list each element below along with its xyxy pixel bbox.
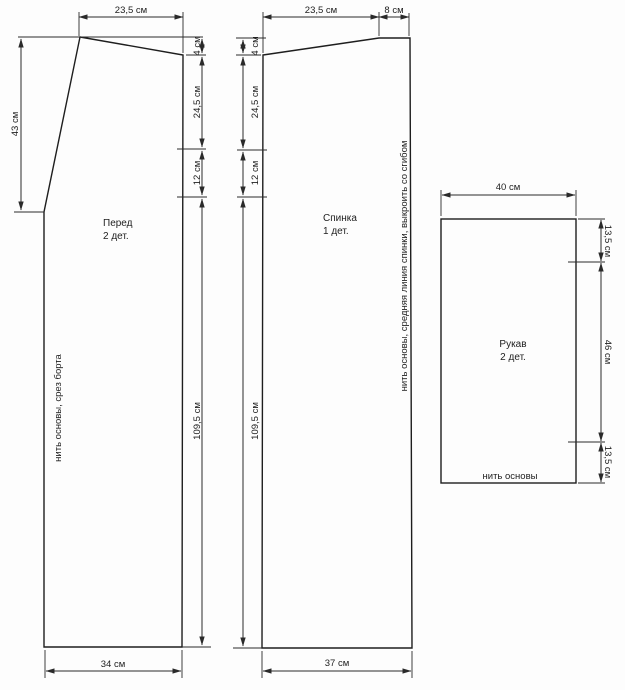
front-shoulder-width-label: 23,5 см: [115, 5, 147, 16]
front-piece-name: Перед: [103, 218, 133, 229]
front-grain-line-text: нить основы, срез борта: [53, 353, 64, 461]
front-edge-drop-label: 43 см: [10, 112, 21, 137]
back-to-waist-label: 12 см: [250, 161, 261, 186]
pattern-drawing: 23,5 см 43 см 4 см 24,5 см 12 см 109,5 с…: [0, 0, 625, 690]
front-shoulder-slope-label: 4 см: [192, 36, 203, 55]
sleeve-piece-quantity: 2 дет.: [500, 352, 526, 363]
sleeve-piece: 40 см 13,5 см 46 см 13,5 см нить основы …: [441, 182, 613, 483]
sleeve-middle-length-label: 46 см: [602, 340, 613, 365]
back-piece: 23,5 см 8 см 4 см 24,5 см 12 см 109,5 см…: [233, 5, 412, 678]
sleeve-grain-line-text: нить основы: [483, 471, 538, 482]
sleeve-piece-name: Рукав: [499, 339, 526, 350]
front-piece-outline: [44, 37, 183, 647]
front-to-waist-label: 12 см: [192, 161, 203, 186]
back-piece-outline: [262, 38, 412, 648]
back-shoulder-slope-label: 4 см: [250, 36, 261, 55]
back-armhole-depth-label: 24,5 см: [250, 86, 261, 118]
back-shoulder-width-label: 23,5 см: [305, 5, 337, 16]
sleeve-width-label: 40 см: [496, 182, 521, 193]
back-piece-name: Спинка: [323, 213, 357, 224]
back-hem-width-label: 37 см: [325, 658, 350, 669]
back-grain-line-text: нить основы, средняя линия спинки, выкро…: [399, 141, 410, 392]
front-piece: 23,5 см 43 см 4 см 24,5 см 12 см 109,5 с…: [10, 5, 211, 678]
back-side-length-label: 109,5 см: [250, 402, 261, 440]
sleeve-piece-outline: [441, 219, 576, 483]
back-neck-width-label: 8 см: [384, 5, 403, 16]
front-armhole-depth-label: 24,5 см: [192, 86, 203, 118]
sleeve-top-offset-label: 13,5 см: [602, 225, 613, 257]
sleeve-bottom-offset-label: 13,5 см: [602, 446, 613, 478]
front-piece-quantity: 2 дет.: [103, 231, 129, 242]
back-piece-quantity: 1 дет.: [323, 226, 349, 237]
sewing-pattern-diagram: 23,5 см 43 см 4 см 24,5 см 12 см 109,5 с…: [0, 0, 625, 690]
front-side-length-label: 109,5 см: [192, 402, 203, 440]
front-hem-width-label: 34 см: [101, 659, 126, 670]
